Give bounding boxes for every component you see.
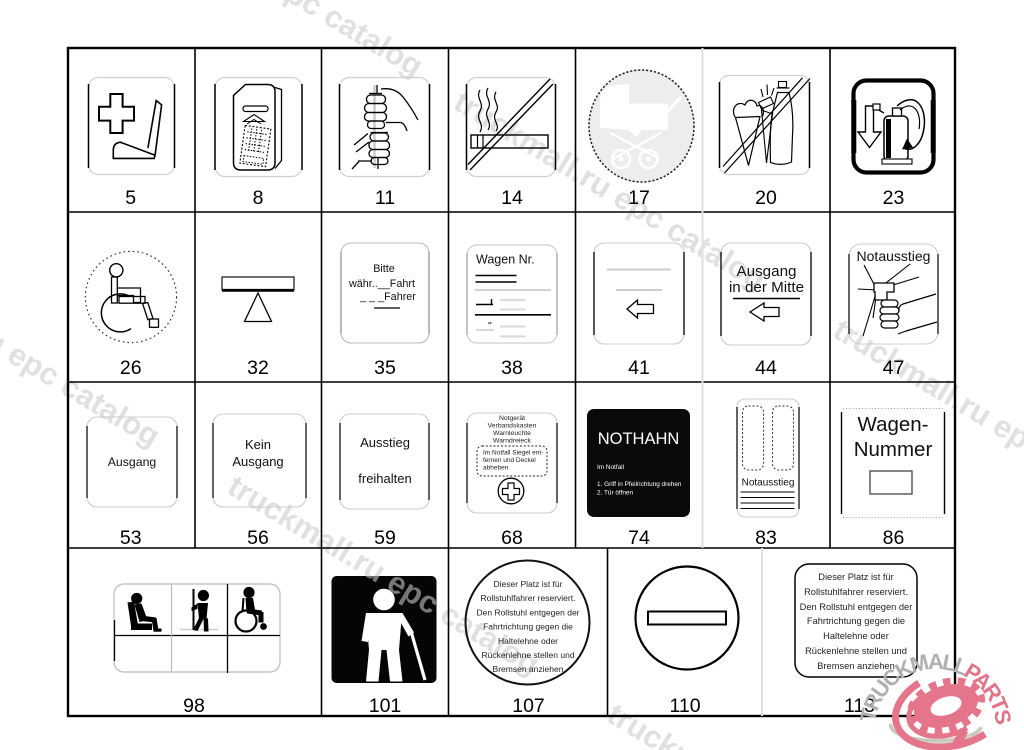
svg-text:Rollstuhlfahrer reserviert.: Rollstuhlfahrer reserviert. — [804, 587, 908, 597]
svg-text:14: 14 — [501, 187, 523, 209]
svg-text:Notgerät: Notgerät — [499, 415, 525, 422]
svg-text:abheben: abheben — [483, 465, 509, 472]
svg-text:Nummer: Nummer — [854, 438, 933, 461]
svg-text:74: 74 — [628, 527, 650, 549]
svg-text:Warnleuchte: Warnleuchte — [493, 430, 531, 437]
svg-text:Bremsen anziehen: Bremsen anziehen — [493, 664, 564, 674]
svg-text:Rollstuhlfahrer reserviert.: Rollstuhlfahrer reserviert. — [481, 593, 576, 603]
svg-text:38: 38 — [501, 357, 523, 379]
svg-text:Rückenlehne stellen und: Rückenlehne stellen und — [805, 646, 907, 656]
svg-text:Notausstieg: Notausstieg — [857, 248, 931, 264]
svg-text:Warndreieck: Warndreieck — [493, 438, 531, 445]
svg-text:Haltelehne oder: Haltelehne oder — [498, 636, 558, 646]
svg-text:Verbandskasten: Verbandskasten — [488, 423, 537, 430]
svg-text:Bitte: Bitte — [373, 263, 395, 275]
svg-text:Notausstieg: Notausstieg — [742, 478, 795, 489]
svg-text:Dieser Platz ist für: Dieser Platz ist für — [818, 572, 893, 582]
svg-text:53: 53 — [120, 527, 142, 549]
svg-text:truckmall.ru epc catalog: truckmall.ru epc catalog — [105, 0, 429, 84]
svg-text:Den Rollstuhl entgegen der: Den Rollstuhl entgegen der — [800, 602, 913, 612]
svg-text:Den Rollstuhl entgegen der: Den Rollstuhl entgegen der — [476, 607, 579, 617]
svg-text:35: 35 — [374, 357, 396, 379]
svg-text:2. Tür öffnen: 2. Tür öffnen — [597, 490, 633, 497]
svg-text:68: 68 — [501, 527, 523, 549]
svg-text:Wagen Nr.: Wagen Nr. — [476, 253, 535, 267]
svg-text:59: 59 — [374, 527, 396, 549]
svg-text:Ausstieg: Ausstieg — [360, 435, 410, 450]
svg-text:8: 8 — [253, 187, 264, 209]
svg-text:1. Griff in Pfeilrichtung dreh: 1. Griff in Pfeilrichtung drehen — [597, 481, 682, 488]
svg-text:Fahrtrichtung gegen die: Fahrtrichtung gegen die — [483, 622, 573, 632]
svg-text:41: 41 — [628, 357, 650, 379]
svg-text:56: 56 — [247, 527, 269, 549]
svg-text:Wagen-: Wagen- — [857, 413, 928, 436]
svg-text:17: 17 — [628, 187, 650, 209]
svg-text:Dieser Platz ist für: Dieser Platz ist für — [494, 579, 563, 589]
svg-text:währ..__Fahrt: währ..__Fahrt — [348, 278, 415, 290]
svg-text:Fahrtrichtung gegen die: Fahrtrichtung gegen die — [807, 616, 905, 626]
svg-text:101: 101 — [369, 695, 402, 717]
svg-text:Ausgang: Ausgang — [737, 263, 797, 280]
svg-text:Ausgang: Ausgang — [232, 454, 283, 469]
svg-text:_ _ _Fahrer: _ _ _Fahrer — [359, 291, 416, 303]
svg-text:Haltelehne oder: Haltelehne oder — [823, 631, 889, 641]
svg-text:Kein: Kein — [245, 437, 271, 452]
svg-text:26: 26 — [120, 357, 142, 379]
svg-text:86: 86 — [883, 527, 905, 549]
svg-text:107: 107 — [512, 695, 545, 717]
svg-text:fernen und Deckel: fernen und Deckel — [483, 457, 536, 464]
svg-text:Im Notfall Siegel ent-: Im Notfall Siegel ent- — [483, 450, 543, 457]
svg-text:Ausgang: Ausgang — [108, 455, 157, 469]
svg-text:23: 23 — [883, 187, 905, 209]
svg-text:83: 83 — [755, 527, 777, 549]
svg-text:NOTHAHN: NOTHAHN — [598, 430, 680, 448]
svg-text:98: 98 — [183, 695, 205, 717]
svg-text:47: 47 — [883, 357, 905, 379]
svg-text:in der Mitte: in der Mitte — [729, 279, 804, 296]
svg-text:32: 32 — [247, 357, 269, 379]
svg-text:11: 11 — [375, 187, 395, 209]
svg-text:44: 44 — [755, 357, 777, 379]
svg-text:110: 110 — [669, 695, 700, 717]
svg-text:20: 20 — [755, 187, 777, 209]
svg-text:5: 5 — [125, 187, 136, 209]
svg-text:Im Notfall: Im Notfall — [597, 464, 624, 471]
svg-text:Rückenlehne stellen und: Rückenlehne stellen und — [481, 650, 574, 660]
svg-text:freihalten: freihalten — [358, 471, 411, 486]
